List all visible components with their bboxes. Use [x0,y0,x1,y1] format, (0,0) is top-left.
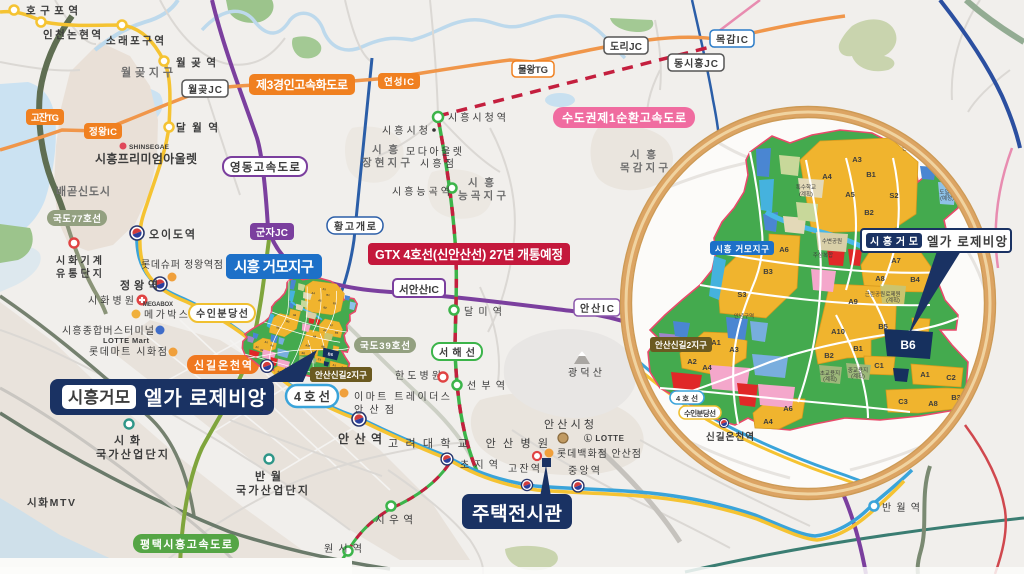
svg-text:4호선: 4호선 [294,389,330,404]
svg-text:서안산IC: 서안산IC [399,283,439,296]
svg-text:국도77호선: 국도77호선 [53,213,101,225]
svg-text:SHINSEGAE: SHINSEGAE [129,144,170,151]
svg-text:초지역: 초지역 [460,459,498,471]
svg-text:서해선: 서해선 [439,346,475,359]
svg-text:초교용지: 초교용지 [820,369,840,377]
svg-text:월곶JC: 월곶JC [188,84,222,96]
svg-text:군자JC: 군자JC [256,226,288,239]
svg-text:4호선: 4호선 [676,393,698,403]
svg-text:중교용지: 중교용지 [848,366,868,374]
svg-text:주택전시관: 주택전시관 [472,503,563,525]
svg-text:엘가 로제비앙: 엘가 로제비앙 [144,387,267,410]
svg-text:시흥 거모지구: 시흥 거모지구 [234,258,314,276]
svg-text:시흥 거모지구: 시흥 거모지구 [715,244,769,254]
svg-text:안산점: 안산점 [354,404,394,416]
svg-text:롯데백화점 안산점: 롯데백화점 안산점 [557,448,641,460]
svg-text:시흥시청역: 시흥시청역 [448,111,506,124]
svg-text:제3경인고속화도로: 제3경인고속화도로 [256,77,348,92]
svg-text:수변공원: 수변공원 [822,237,842,245]
svg-text:(계획): (계획) [886,296,900,304]
svg-text:국도39호선: 국도39호선 [360,340,410,352]
svg-text:시흥능곡역: 시흥능곡역 [392,185,450,198]
svg-text:시흥거모: 시흥거모 [68,387,130,407]
svg-text:시흥프리미엄아울렛: 시흥프리미엄아울렛 [95,151,197,166]
svg-text:고잔TG: 고잔TG [31,112,59,124]
svg-text:물왕TG: 물왕TG [518,64,548,76]
svg-text:영동고속도로: 영동고속도로 [230,161,300,174]
svg-text:평택시흥고속도로: 평택시흥고속도로 [140,537,232,551]
svg-text:롯데슈퍼 정왕역점: 롯데슈퍼 정왕역점 [141,259,223,271]
svg-text:(계획): (계획) [799,190,813,198]
svg-text:이마트 트레이더스: 이마트 트레이더스 [354,391,450,403]
svg-text:안산신길2지구: 안산신길2지구 [655,340,707,350]
svg-text:안산신길2지구: 안산신길2지구 [315,370,367,380]
svg-text:목감IC: 목감IC [716,34,748,46]
svg-text:정왕IC: 정왕IC [89,126,117,138]
svg-text:인천논현역: 인천논현역 [43,28,101,41]
svg-text:월곶역: 월곶역 [176,56,216,69]
svg-text:MEGABOX: MEGABOX [143,302,173,308]
svg-text:수인분당선: 수인분당선 [684,408,716,418]
svg-text:고잔역: 고잔역 [508,463,540,475]
svg-text:원시역: 원시역 [324,543,362,555]
svg-text:근린공원: 근린공원 [865,290,885,298]
svg-text:수인분당선: 수인분당선 [196,307,248,320]
svg-text:롯데마트 시화점: 롯데마트 시화점 [89,346,167,358]
svg-text:엘가 로제비앙: 엘가 로제비앙 [927,234,1007,249]
svg-text:연성IC: 연성IC [384,76,414,88]
svg-text:안녕구역: 안녕구역 [734,312,754,320]
svg-text:황고개로: 황고개로 [334,220,376,233]
svg-text:달미역: 달미역 [464,306,502,318]
svg-text:안산IC: 안산IC [580,302,614,315]
svg-text:LOTTE Mart: LOTTE Mart [103,336,150,345]
svg-text:시흥점: 시흥점 [420,157,454,170]
svg-text:신길온천역: 신길온천역 [194,358,252,372]
svg-text:동시흥JC: 동시흥JC [674,57,718,70]
svg-text:오이도역: 오이도역 [149,227,195,241]
svg-text:반월역: 반월역 [882,502,920,514]
svg-text:안산역: 안산역 [338,431,382,446]
svg-text:신길온천역: 신길온천역 [706,431,754,443]
svg-text:(계획): (계획) [823,375,837,383]
svg-text:수도권제1순환고속도로: 수도권제1순환고속도로 [562,110,686,125]
svg-text:소래포구역: 소래포구역 [106,34,164,47]
svg-text:주상복합: 주상복합 [813,251,833,259]
svg-text:Ⓛ LOTTE: Ⓛ LOTTE [584,433,625,443]
svg-text:도리JC: 도리JC [610,40,642,53]
svg-text:(계획): (계획) [851,372,865,380]
svg-text:광덕산: 광덕산 [568,367,602,379]
svg-text:시화MTV: 시화MTV [27,496,75,509]
svg-text:특수학교: 특수학교 [796,183,816,191]
svg-text:모다아울렛: 모다아울렛 [406,146,462,158]
svg-text:배곧신도시: 배곧신도시 [56,184,110,198]
svg-text:정왕역: 정왕역 [120,278,158,292]
svg-text:달월역: 달월역 [176,121,218,134]
svg-text:GTX 4호선(신안산선) 27년 개통예정: GTX 4호선(신안산선) 27년 개통예정 [375,247,563,262]
svg-text:중앙역: 중앙역 [568,465,600,477]
svg-text:로제원: 로제원 [885,290,900,298]
svg-text:시우역: 시우역 [375,514,413,526]
svg-text:선부역: 선부역 [467,380,505,392]
